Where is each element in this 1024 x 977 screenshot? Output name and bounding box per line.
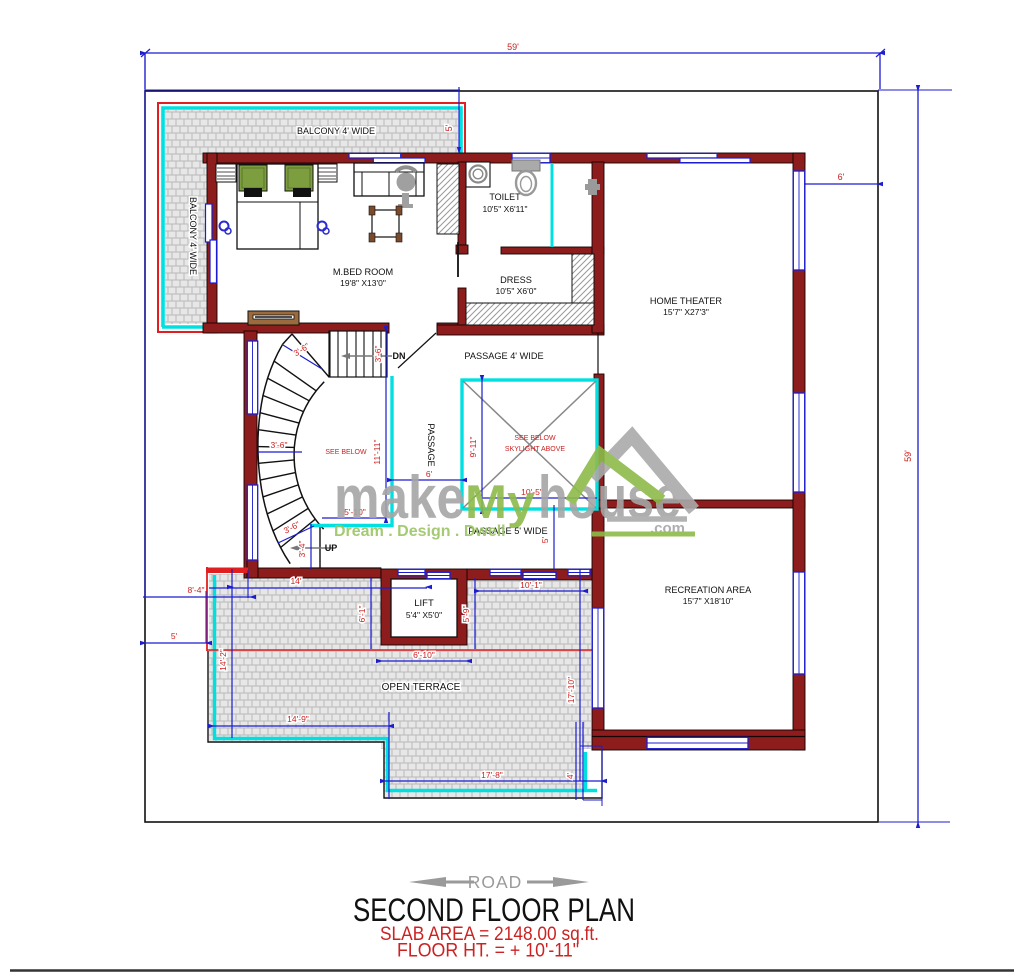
svg-text:9'-11": 9'-11" <box>468 436 478 457</box>
svg-text:15'7" X27'3": 15'7" X27'3" <box>663 307 709 317</box>
svg-text:UP: UP <box>325 543 338 553</box>
svg-text:6'-10": 6'-10" <box>413 650 435 660</box>
svg-text:5': 5' <box>171 631 178 641</box>
svg-text:TOILET: TOILET <box>489 192 521 202</box>
svg-text:BALCONY 4' WIDE: BALCONY 4' WIDE <box>297 126 375 136</box>
svg-text:make: make <box>334 464 465 531</box>
svg-text:15'7" X18'10": 15'7" X18'10" <box>683 596 733 606</box>
svg-text:SKYLIGHT ABOVE: SKYLIGHT ABOVE <box>505 446 566 453</box>
svg-text:ROAD: ROAD <box>468 872 523 892</box>
svg-text:PASSAGE: PASSAGE <box>426 423 436 466</box>
svg-text:OPEN TERRACE: OPEN TERRACE <box>382 682 461 693</box>
svg-text:17'-10": 17'-10" <box>566 677 576 703</box>
svg-text:10'-1": 10'-1" <box>520 580 542 590</box>
svg-text:DN: DN <box>393 351 406 361</box>
svg-text:RECREATION AREA: RECREATION AREA <box>665 585 752 595</box>
svg-text:5'4" X5'0": 5'4" X5'0" <box>406 610 442 620</box>
svg-text:My: My <box>465 475 535 528</box>
svg-text:10'5" X6'11": 10'5" X6'11" <box>482 204 527 214</box>
svg-text:HOME THEATER: HOME THEATER <box>650 296 723 306</box>
svg-text:59': 59' <box>903 450 913 462</box>
svg-text:14': 14' <box>290 576 301 586</box>
svg-text:59': 59' <box>507 42 519 52</box>
svg-text:17'-8": 17'-8" <box>481 770 503 780</box>
svg-text:3'-6": 3'-6" <box>271 440 288 450</box>
svg-text:14'-2": 14'-2" <box>218 649 228 671</box>
svg-text:LIFT: LIFT <box>414 598 434 609</box>
svg-text:SEE BELOW: SEE BELOW <box>325 449 367 456</box>
svg-text:19'8" X13'0": 19'8" X13'0" <box>340 278 386 288</box>
svg-text:3'-6": 3'-6" <box>373 346 383 363</box>
svg-text:5'-9": 5'-9" <box>461 606 471 623</box>
svg-text:4': 4' <box>566 773 575 779</box>
svg-text:Dream . Design . Dwell: Dream . Design . Dwell <box>334 523 506 540</box>
svg-text:8'-4": 8'-4" <box>188 585 205 595</box>
svg-text:11'-11": 11'-11" <box>372 439 382 464</box>
svg-text:6': 6' <box>838 172 845 182</box>
svg-text:5': 5' <box>540 536 550 543</box>
svg-text:6'-1": 6'-1" <box>357 606 367 623</box>
svg-text:3'-4": 3'-4" <box>297 541 307 558</box>
svg-text:FLOOR HT. = + 10'-11": FLOOR HT. = + 10'-11" <box>397 940 579 962</box>
svg-text:10'5" X6'0": 10'5" X6'0" <box>496 286 537 296</box>
svg-text:5': 5' <box>444 124 454 131</box>
svg-text:SEE BELOW: SEE BELOW <box>514 435 556 442</box>
svg-text:M.BED ROOM: M.BED ROOM <box>333 267 393 277</box>
svg-text:14'-9": 14'-9" <box>287 714 309 724</box>
svg-text:DRESS: DRESS <box>500 275 532 285</box>
svg-text:PASSAGE 4' WIDE: PASSAGE 4' WIDE <box>464 351 543 361</box>
svg-text:BALCONY 4' WIDE: BALCONY 4' WIDE <box>188 197 198 275</box>
